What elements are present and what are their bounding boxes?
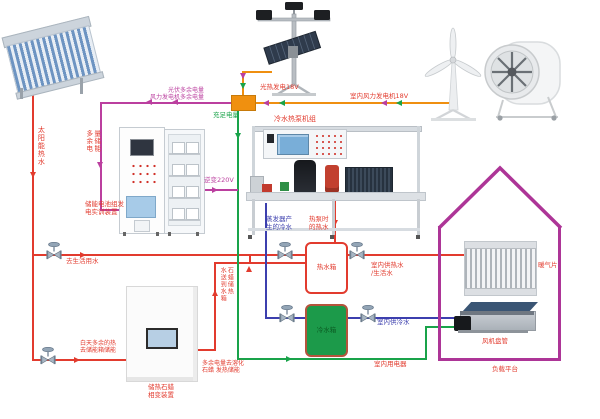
wire-green-up bbox=[425, 326, 427, 360]
battery-box bbox=[186, 142, 199, 154]
cold-tank-label: 冷水箱 bbox=[317, 327, 337, 335]
solar-collector bbox=[2, 16, 103, 99]
label-indoor-wind-generation: 室内风力发电机18V bbox=[350, 93, 408, 101]
wind-turbine bbox=[424, 28, 482, 121]
label-paraffin-to-tank: 水送到水箱 石蜡储热 bbox=[219, 267, 233, 302]
bench-red-part bbox=[262, 184, 272, 192]
wire-green-vertical bbox=[237, 109, 239, 360]
wire-surplus-vertical bbox=[100, 102, 102, 210]
arrow-pv-green-down bbox=[240, 83, 246, 89]
pipe-paraffin-horizontal bbox=[214, 262, 306, 264]
fan-coil-motor bbox=[454, 316, 471, 331]
wind-tunnel-fan bbox=[485, 42, 560, 121]
valve-hot-supply bbox=[349, 241, 365, 261]
arrow-bus-green-2 bbox=[396, 100, 402, 106]
cabinet-screen bbox=[130, 139, 154, 156]
wind-turbine-and-tunnel bbox=[418, 22, 568, 122]
house-floor bbox=[438, 358, 561, 361]
battery-box bbox=[186, 208, 199, 220]
arrow-bus-mag-1 bbox=[263, 100, 269, 106]
label-melt-paraffin: 多余电量去溶化 石蜡 发热储能 bbox=[202, 360, 244, 374]
label-supply-cold: 室内供冷水 bbox=[377, 319, 410, 327]
battery-box bbox=[186, 186, 199, 198]
bench-control-panel bbox=[263, 129, 347, 159]
bench-condenser-fins bbox=[345, 167, 393, 195]
wire-surplus-horizontal bbox=[100, 102, 232, 104]
collector-leg bbox=[80, 78, 83, 94]
wire-inverter bbox=[203, 189, 238, 191]
cabinet-lower-panel bbox=[134, 220, 150, 232]
cabinet-buttons bbox=[128, 160, 156, 188]
battery-box bbox=[172, 186, 185, 198]
label-surplus-power: 光伏多余电量 风力发电机多余电量 bbox=[148, 87, 204, 101]
label-battery-cabinet: 储能电池组发 电实训装置 bbox=[85, 201, 124, 217]
arrow-surplus-down bbox=[97, 162, 103, 168]
pipe-paraffin-riser bbox=[214, 262, 216, 350]
label-pv-generation: 光热发电18V bbox=[260, 84, 299, 92]
cabinet-foot bbox=[196, 232, 199, 236]
label-sufficient-power: 充足电量 bbox=[213, 112, 239, 120]
pipe-paraffin-link bbox=[249, 254, 251, 264]
hot-water-tank: 热水箱 bbox=[305, 242, 348, 294]
label-inverter: 逆变220V bbox=[204, 177, 234, 185]
arrow-charge-right bbox=[74, 357, 80, 363]
label-domestic-water: 去生活用水 bbox=[66, 258, 99, 266]
arrow-bus-green-1 bbox=[279, 100, 285, 106]
label-load-platform: 负载平台 bbox=[492, 366, 518, 374]
label-supply-hot: 室内供热水 /生活水 bbox=[371, 262, 404, 278]
arrow-bus-mag-2 bbox=[381, 100, 387, 106]
arrow-green-down bbox=[235, 133, 241, 139]
rack-glass bbox=[168, 134, 201, 226]
junction-box bbox=[231, 95, 256, 111]
paraffin-screen bbox=[146, 328, 178, 349]
arrow-green-right bbox=[286, 356, 292, 362]
pipe-solar-riser bbox=[32, 95, 34, 361]
battery-control-cabinet bbox=[119, 127, 165, 234]
bench-red-cylinder bbox=[325, 165, 339, 193]
label-indoor-appliance: 室内用电器 bbox=[374, 361, 407, 369]
hot-tank-label: 热水箱 bbox=[317, 264, 337, 272]
bench-tabletop bbox=[246, 192, 426, 201]
battery-box bbox=[172, 142, 185, 154]
arrow-paraffin-up bbox=[212, 290, 218, 296]
valve-storage-charge bbox=[40, 346, 56, 366]
cabinet-foot bbox=[123, 232, 126, 236]
pipe-paraffin-out bbox=[196, 349, 216, 351]
paraffin-storage-unit bbox=[126, 286, 198, 382]
battery-rack-cabinet bbox=[164, 129, 205, 234]
label-condenser-hot: 热泵时 的热水 bbox=[309, 216, 329, 232]
bench-buttons bbox=[313, 132, 344, 156]
arrow-pv-mag-down bbox=[240, 73, 246, 79]
battery-box bbox=[172, 208, 185, 220]
bench-compressor bbox=[294, 160, 316, 193]
house-left-wall bbox=[438, 226, 441, 361]
valve-cold-supply bbox=[360, 304, 376, 324]
cabinet-blue-panel bbox=[126, 196, 156, 218]
energy-system-diagram: 热水箱 冷水箱 太阳能热水 bbox=[0, 0, 600, 419]
arrow-solar-down bbox=[30, 172, 36, 178]
arrow-paraffin-link-up bbox=[246, 266, 252, 272]
valve-cold-left bbox=[279, 304, 295, 324]
cold-water-tank: 冷水箱 bbox=[305, 304, 348, 357]
radiator bbox=[464, 241, 537, 296]
fan-coil-unit bbox=[454, 300, 538, 335]
label-heat-pump-title: 冷水热泵机组 bbox=[274, 115, 316, 123]
label-solar-hot-water: 太阳能热水 bbox=[37, 126, 45, 166]
house-roof bbox=[428, 162, 574, 234]
valve-hot-main bbox=[277, 241, 293, 261]
label-radiator: 暖气片 bbox=[538, 262, 558, 270]
battery-box bbox=[186, 164, 199, 176]
cabinet-foot bbox=[168, 232, 171, 236]
cabinet-foot bbox=[156, 232, 159, 236]
label-day-surplus: 白天多余的热 去储能箱储能 bbox=[80, 340, 116, 354]
collector-leg bbox=[20, 88, 23, 99]
label-surplus-storage: 多余电 量储能 bbox=[84, 130, 100, 153]
bench-screen bbox=[277, 134, 309, 155]
arrow-inverter-right bbox=[212, 187, 218, 193]
label-fan-coil: 风机盘管 bbox=[482, 338, 508, 346]
valve-domestic-water bbox=[46, 241, 62, 261]
bench-green-part bbox=[280, 182, 289, 191]
battery-box bbox=[172, 164, 185, 176]
label-paraffin-device: 储热石蜡 相变装置 bbox=[136, 384, 186, 400]
house-right-wall bbox=[558, 226, 561, 361]
label-evaporator-cold: 蒸发器产 生的冷水 bbox=[266, 216, 292, 232]
